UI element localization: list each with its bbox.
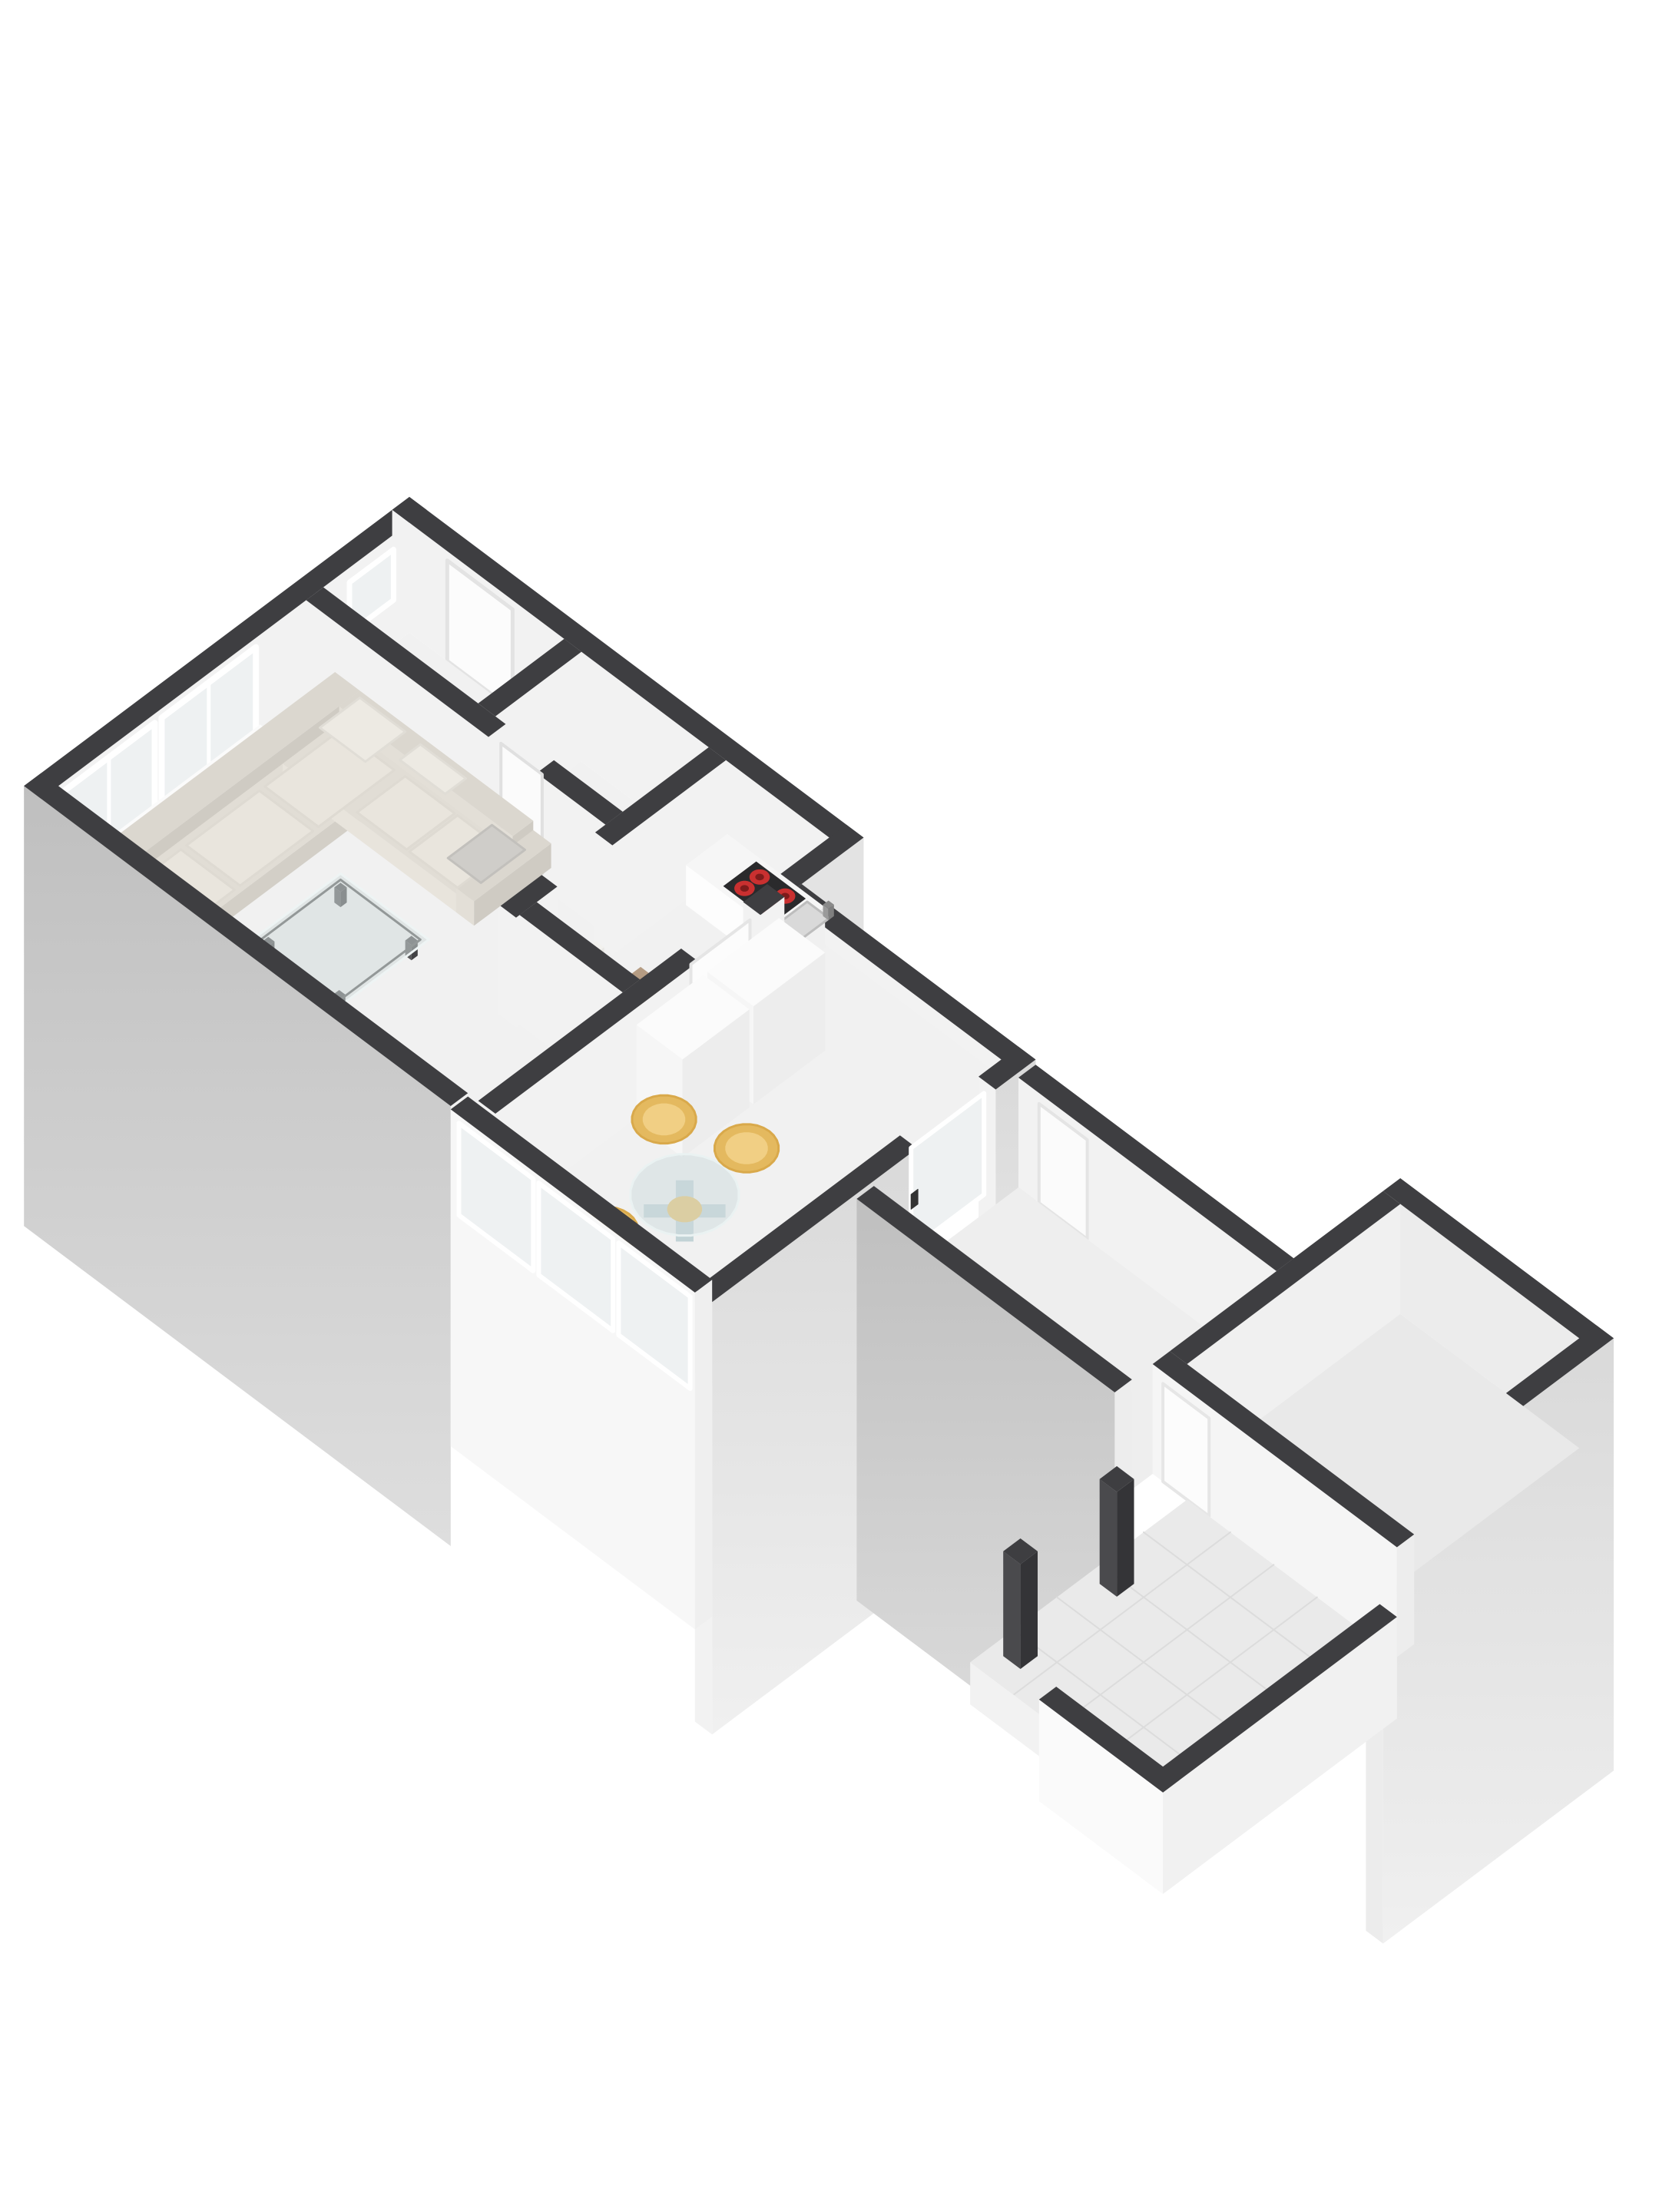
patio-post-2-face-se <box>1021 1551 1038 1669</box>
floorplan-3d <box>0 0 1659 2212</box>
dining-table-glass <box>631 1154 739 1236</box>
floorplan-stage <box>0 0 1659 2212</box>
wall-kitchen-nw-b-face-sw <box>499 905 516 1028</box>
burner-2-center <box>740 885 749 892</box>
patio-post-1-face-sw <box>1100 1479 1117 1597</box>
wall-glazing-face-se <box>695 1280 712 1629</box>
patio-post-2-face-sw <box>1003 1551 1020 1669</box>
dining-chair-1-seat <box>643 1104 685 1136</box>
floorplan-scene <box>24 497 1614 1944</box>
patio-post-1-face-se <box>1117 1479 1134 1597</box>
burner-1-center <box>755 874 763 881</box>
wall-kitchen-nw-a-face-sw <box>595 833 612 955</box>
dining-chair-2-seat <box>725 1132 767 1164</box>
wall-storage-sw-face-se <box>1397 1535 1414 1657</box>
